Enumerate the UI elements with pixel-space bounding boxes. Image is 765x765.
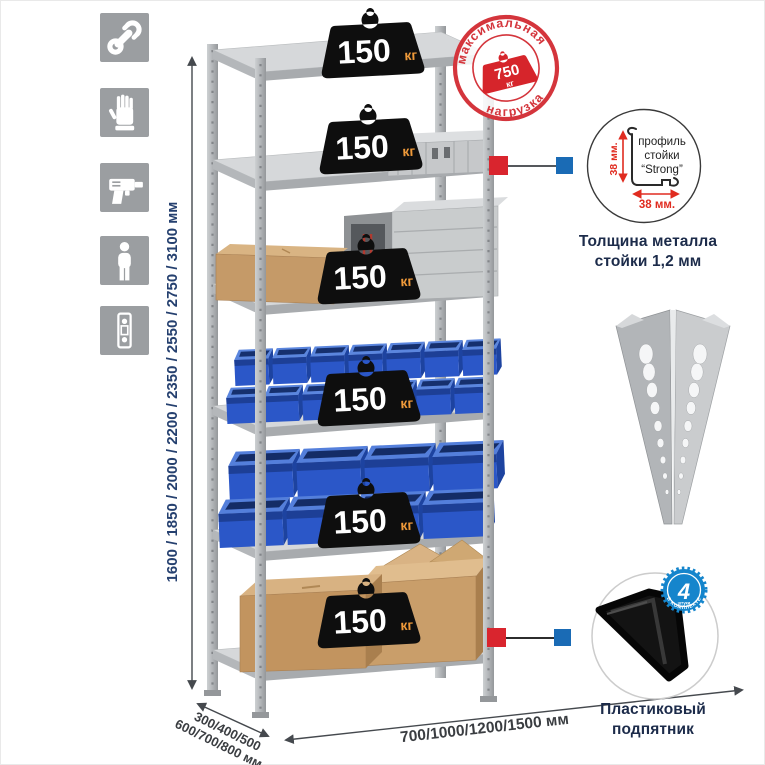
svg-text:профиль: профиль (638, 136, 686, 148)
svg-text:700/1000/1200/1500 мм: 700/1000/1200/1500 мм (399, 711, 569, 746)
load-badge: 150 кг (317, 101, 423, 174)
foot-caption: Пластиковый подпятник (553, 700, 753, 740)
svg-text:150: 150 (332, 380, 387, 419)
connector-blue-square (554, 629, 571, 646)
plastic-foot-callout: 4 штуки в комплекте (585, 566, 725, 706)
post-profile-callout: 38 мм. 38 мм. профиль стойки “Strong” (579, 101, 709, 231)
svg-text:“Strong”: “Strong” (641, 164, 683, 176)
svg-text:кг: кг (402, 143, 416, 160)
profile-connector (489, 156, 573, 175)
profile-caption: Толщина металла стойки 1,2 мм (548, 232, 748, 272)
max-load-stamp: максимальная нагрузка 750 кг (444, 5, 568, 130)
foot-connector (487, 628, 571, 647)
shelving-infographic: 1600 / 1850 / 2000 / 2200 / 2350 / 2550 … (0, 0, 765, 765)
svg-text:кг: кг (400, 517, 414, 534)
load-badge: 150 кг (319, 5, 425, 78)
svg-text:38 мм.: 38 мм. (639, 199, 675, 211)
svg-text:кг: кг (404, 47, 418, 64)
height-dimension-label: 1600 / 1850 / 2000 / 2200 / 2350 / 2550 … (164, 202, 181, 583)
svg-text:стойки: стойки (644, 150, 679, 162)
svg-text:150: 150 (332, 502, 387, 541)
connector-red-square (487, 628, 506, 647)
connector-blue-square (556, 157, 573, 174)
svg-text:150: 150 (334, 128, 389, 167)
svg-text:кг: кг (400, 273, 414, 290)
svg-text:38 мм.: 38 мм. (608, 142, 620, 175)
svg-text:150: 150 (336, 32, 391, 71)
included-count-badge: 4 штуки в комплекте (663, 569, 706, 612)
svg-text:150: 150 (332, 602, 387, 641)
svg-text:кг: кг (400, 395, 414, 412)
metal-angle-post (598, 296, 748, 534)
svg-text:150: 150 (332, 258, 387, 297)
connector-red-square (489, 156, 508, 175)
svg-text:кг: кг (400, 617, 414, 634)
